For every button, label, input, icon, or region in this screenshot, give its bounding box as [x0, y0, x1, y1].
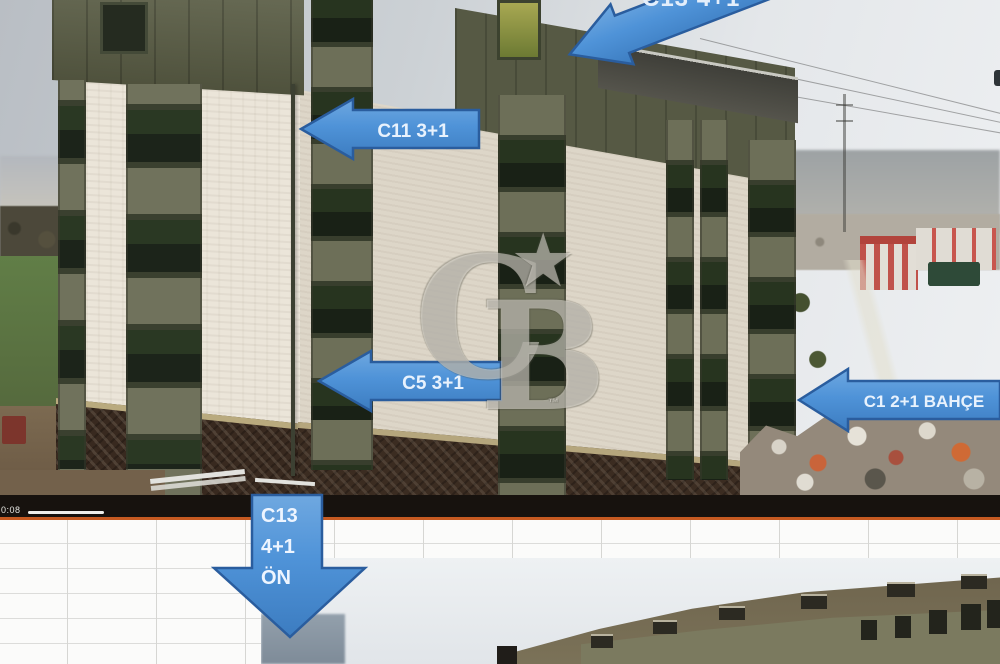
dormer-window — [887, 582, 915, 597]
edge-handle[interactable] — [994, 70, 1000, 86]
window-strip — [666, 120, 694, 480]
power-pylon — [843, 94, 846, 232]
screen-recording-frame: C13 4+1 C11 3+1 C5 3+1 C1 2+1 BAHÇE C ★ … — [0, 0, 1000, 664]
facade-window — [929, 610, 947, 634]
annotation-label-line: 4+1 — [261, 532, 335, 563]
annotation-label-c13-top: C13 4+1 — [642, 0, 740, 13]
dormer-window — [961, 574, 987, 589]
facade-window — [987, 600, 1000, 628]
dormer-window — [801, 594, 827, 609]
facade-window — [961, 604, 981, 630]
top-floor-window — [100, 2, 148, 54]
mud-ground-bottom — [0, 470, 165, 495]
annotation-arrow-c11: C11 3+1 — [297, 96, 483, 162]
dormer-window — [653, 620, 677, 634]
annotation-label-c13-on: C13 4+1 ÖN — [247, 501, 335, 594]
window-strip — [126, 84, 202, 495]
annotation-arrow-c1: C1 2+1 BAHÇE — [796, 366, 1000, 434]
red-dumpster — [2, 416, 26, 444]
listing-photo-secondary — [261, 558, 1000, 664]
facade-window — [895, 616, 911, 638]
annotation-label-line: ÖN — [261, 563, 335, 594]
video-timestamp: 0:08 — [1, 505, 21, 515]
annotation-label-c11: C11 3+1 — [377, 121, 449, 142]
dormer-window — [719, 606, 745, 620]
dark-object — [497, 646, 517, 664]
accent-orange-line — [0, 517, 1000, 520]
annotation-label-c5: C5 3+1 — [402, 373, 464, 394]
building-roof-band-left — [52, 0, 304, 95]
annotation-arrow-c5: C5 3+1 — [315, 348, 505, 414]
listing-photo-main: C13 4+1 C11 3+1 C5 3+1 C1 2+1 BAHÇE C ★ … — [0, 0, 1000, 495]
window-strip — [498, 95, 566, 495]
window-strip — [58, 80, 86, 495]
dormer-window — [591, 634, 613, 648]
window-strip — [700, 120, 728, 480]
annotation-label-line: C13 — [261, 501, 335, 532]
annotation-label-c1: C1 2+1 BAHÇE — [864, 392, 984, 411]
lit-window — [497, 0, 541, 60]
corner-downpipe — [291, 84, 295, 476]
video-progress-segment[interactable] — [28, 511, 104, 514]
facade-window — [861, 620, 877, 640]
